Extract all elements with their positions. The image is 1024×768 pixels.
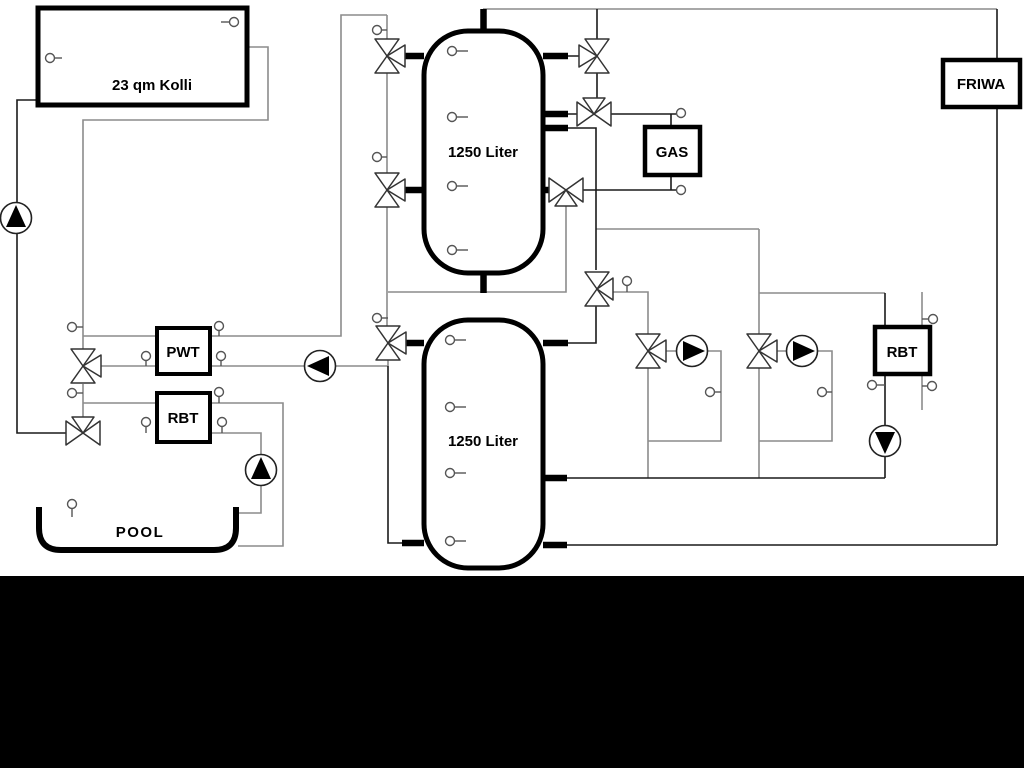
sensor-icon — [68, 389, 84, 398]
three-way-valve-icon — [375, 173, 405, 207]
pipe-branch1-loop — [613, 292, 721, 478]
three-way-valve-icon — [71, 349, 101, 383]
upper-tank-left-stubs — [405, 56, 424, 190]
sensor-icon — [677, 109, 686, 118]
sensor-icon — [922, 315, 938, 324]
three-way-valve-icon — [375, 39, 405, 73]
collector-label: 23 qm Kolli — [112, 77, 192, 94]
schematic-page: 23 qm Kolli 1250 Liter 1250 Liter PWT RB… — [0, 0, 1024, 768]
sensor-icon — [142, 352, 151, 367]
sensor-icon — [922, 382, 937, 391]
tank-upper-label: 1250 Liter — [448, 144, 518, 161]
sensor-icon — [215, 388, 224, 404]
three-way-valve-icon — [579, 39, 609, 73]
pipe-branch-feed — [596, 229, 885, 334]
pump-right-icon — [787, 336, 818, 367]
three-way-valve-icon — [577, 98, 611, 126]
hydraulic-diagram: 23 qm Kolli 1250 Liter 1250 Liter PWT RB… — [0, 0, 1024, 768]
sensor-icon — [68, 323, 84, 332]
sensor-icon — [217, 352, 226, 367]
footer-black-band — [0, 576, 1024, 768]
sensor-icon — [373, 314, 389, 323]
sensor-icon — [215, 322, 224, 337]
sensor-icon — [142, 418, 151, 434]
pump-up-icon — [246, 455, 277, 486]
three-way-valve-icon — [585, 272, 613, 306]
sensor-icon — [68, 500, 77, 518]
sensor-icon — [677, 186, 686, 195]
pipe-tank-bottom-left — [388, 366, 402, 543]
pwt-label: PWT — [166, 344, 199, 361]
three-way-valve-icon — [66, 417, 100, 445]
pipe-rbt-pool-links — [83, 384, 157, 417]
sensor-icon — [218, 418, 227, 434]
rbt-right-label: RBT — [887, 344, 918, 361]
gas-label: GAS — [656, 144, 689, 161]
three-way-valve-icon — [376, 326, 406, 360]
pool-label: POOL — [116, 524, 165, 541]
lower-tank-left-stubs — [402, 343, 424, 543]
pipe-branch2-loop — [759, 351, 832, 478]
sensor-icon — [623, 277, 632, 293]
pump-down-icon — [870, 426, 901, 457]
tank-lower-label: 1250 Liter — [448, 433, 518, 450]
pump-up-icon — [1, 203, 32, 234]
mixing-valve-icon — [636, 334, 666, 368]
mixing-valve-icon — [747, 334, 777, 368]
upper-tank-right-stubs — [543, 56, 568, 190]
sensor-icon — [868, 381, 886, 390]
lower-tank-right-stubs — [543, 343, 568, 545]
pump-left-icon — [305, 351, 336, 382]
three-way-valve-icon — [549, 178, 583, 206]
pipe-pwt-lines — [83, 336, 388, 366]
sensor-icon — [373, 153, 388, 162]
sensor-icon — [818, 388, 833, 397]
pump-right-icon — [677, 336, 708, 367]
sensor-icon — [706, 388, 722, 397]
rbt-pool-label: RBT — [168, 410, 199, 427]
sensor-icon — [373, 26, 388, 35]
friwa-label: FRIWA — [957, 76, 1005, 93]
pipe-return-line — [567, 293, 885, 478]
pipe-solar-cold — [17, 100, 66, 433]
